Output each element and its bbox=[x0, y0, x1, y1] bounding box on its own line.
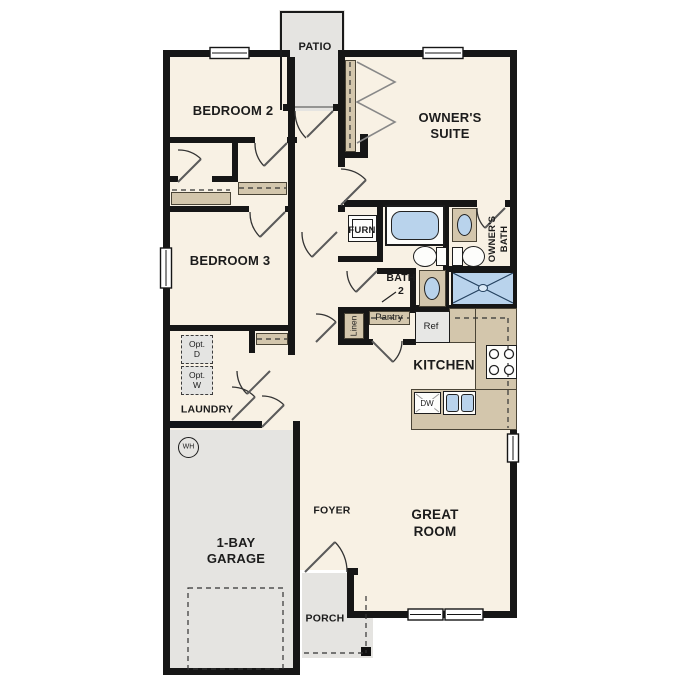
wall bbox=[163, 206, 249, 212]
owners-bath-label: OWNER'S BATH bbox=[487, 216, 511, 262]
wall bbox=[163, 137, 255, 143]
wall bbox=[338, 256, 383, 262]
wall bbox=[163, 50, 170, 675]
optional-dryer: Opt. D bbox=[181, 335, 213, 364]
wall bbox=[505, 200, 517, 207]
great-room-line2: ROOM bbox=[411, 524, 458, 541]
closet-shelf bbox=[256, 333, 288, 345]
wall bbox=[347, 568, 354, 618]
sink-bowl-left bbox=[446, 394, 459, 412]
owners-suite-line2: SUITE bbox=[419, 126, 482, 142]
owners-closet-shelf bbox=[345, 60, 356, 152]
owners-bath-line1: OWNER'S bbox=[487, 216, 498, 262]
foyer-label: FOYER bbox=[313, 504, 350, 517]
bath2-label: BATH 2 bbox=[386, 272, 415, 298]
garage-label: 1-BAY GARAGE bbox=[207, 535, 265, 568]
great-room-label: GREAT ROOM bbox=[411, 507, 458, 541]
bath2-sink bbox=[424, 277, 440, 300]
wall bbox=[288, 331, 295, 355]
wall bbox=[287, 57, 295, 104]
porch-post bbox=[361, 647, 371, 656]
floor-plan-canvas: Opt. D Opt. W bbox=[0, 0, 687, 687]
garage-line2: GARAGE bbox=[207, 551, 265, 567]
wall bbox=[338, 50, 517, 57]
wall bbox=[285, 206, 295, 212]
wall bbox=[293, 421, 300, 675]
pantry-label: Pantry bbox=[375, 312, 402, 324]
shower-fixture bbox=[451, 271, 515, 306]
range-stove bbox=[486, 345, 517, 379]
patio-label: PATIO bbox=[299, 41, 332, 55]
toilet-bowl bbox=[413, 246, 437, 267]
sink-bowl-right bbox=[461, 394, 474, 412]
toilet-tank bbox=[436, 247, 447, 266]
wall bbox=[163, 325, 295, 331]
dishwasher-label: DW bbox=[419, 399, 434, 409]
closet-shelf bbox=[171, 192, 231, 205]
owners-bath-sink bbox=[457, 214, 472, 236]
wall bbox=[212, 176, 238, 182]
patio-region-lower bbox=[288, 50, 345, 111]
bath2-line2: 2 bbox=[386, 285, 415, 298]
laundry-label: LAUNDRY bbox=[181, 403, 233, 416]
optional-washer: Opt. W bbox=[181, 366, 213, 395]
wall bbox=[338, 50, 345, 167]
toilet-bowl bbox=[462, 246, 485, 267]
garage-line1: 1-BAY bbox=[217, 535, 256, 550]
opt-washer-label2: W bbox=[193, 381, 201, 391]
owners-suite-label: OWNER'S SUITE bbox=[419, 110, 482, 143]
wall bbox=[377, 207, 383, 262]
wall bbox=[163, 668, 300, 675]
porch-label: PORCH bbox=[306, 612, 345, 625]
wall bbox=[360, 134, 368, 156]
water-heater-label: WH bbox=[183, 443, 195, 452]
wall bbox=[163, 421, 262, 428]
closet-shelf bbox=[238, 182, 287, 195]
great-room-line1: GREAT bbox=[411, 507, 458, 522]
wall bbox=[249, 331, 255, 353]
furnace-label: FURN bbox=[348, 225, 375, 237]
owners-suite-line1: OWNER'S bbox=[419, 110, 482, 125]
wall bbox=[163, 50, 290, 57]
bedroom3-label: BEDROOM 3 bbox=[190, 253, 271, 269]
wall bbox=[338, 339, 373, 345]
owners-bath-line2: BATH bbox=[499, 216, 511, 262]
opt-dryer-label2: D bbox=[194, 350, 200, 360]
bath2-line1: BATH bbox=[386, 272, 415, 284]
wall bbox=[283, 104, 295, 111]
bathtub-fixture bbox=[391, 211, 439, 240]
wall bbox=[163, 176, 178, 182]
wall bbox=[347, 611, 517, 618]
fridge-label: Ref bbox=[424, 321, 439, 333]
linen-label: Linen bbox=[349, 316, 360, 337]
wall bbox=[288, 143, 295, 331]
bedroom2-label: BEDROOM 2 bbox=[193, 103, 274, 119]
kitchen-label: KITCHEN bbox=[413, 358, 474, 375]
